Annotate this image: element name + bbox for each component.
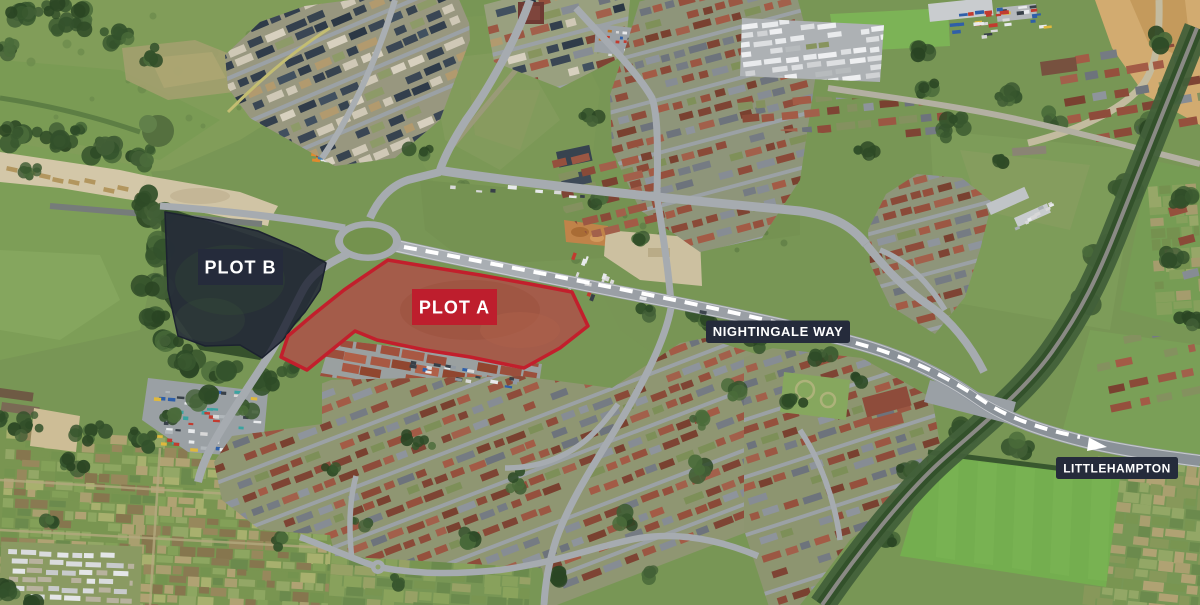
svg-text:PLOT A: PLOT A	[419, 298, 490, 318]
svg-text:LITTLEHAMPTON: LITTLEHAMPTON	[1063, 462, 1171, 476]
svg-text:PLOT B: PLOT B	[205, 258, 277, 278]
svg-text:NIGHTINGALE WAY: NIGHTINGALE WAY	[713, 324, 844, 339]
